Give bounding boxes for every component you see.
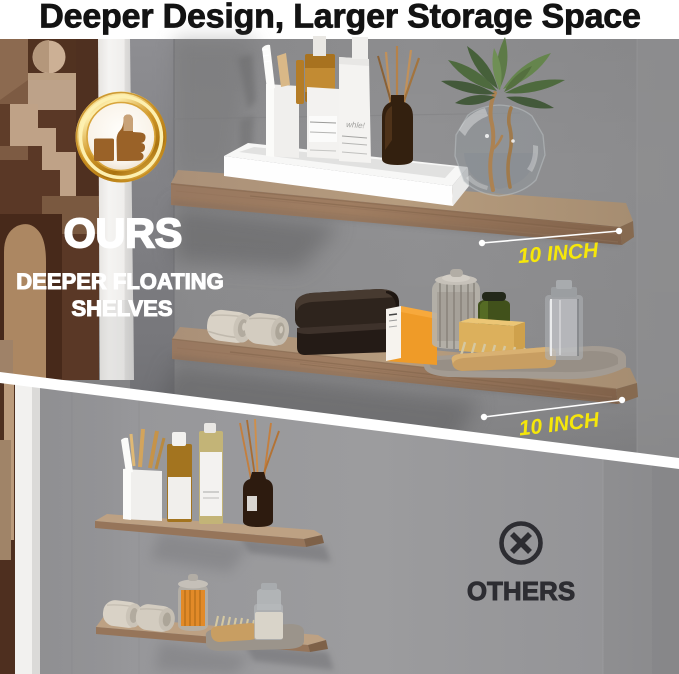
svg-text:SHELVES: SHELVES bbox=[71, 296, 172, 321]
svg-text:OTHERS: OTHERS bbox=[467, 576, 575, 606]
svg-text:DEEPER FLOATING: DEEPER FLOATING bbox=[16, 269, 223, 294]
svg-text:Deeper Design, Larger Storage: Deeper Design, Larger Storage Space bbox=[39, 0, 640, 36]
svg-text:whle!: whle! bbox=[346, 120, 366, 130]
svg-text:OURS: OURS bbox=[64, 210, 182, 256]
